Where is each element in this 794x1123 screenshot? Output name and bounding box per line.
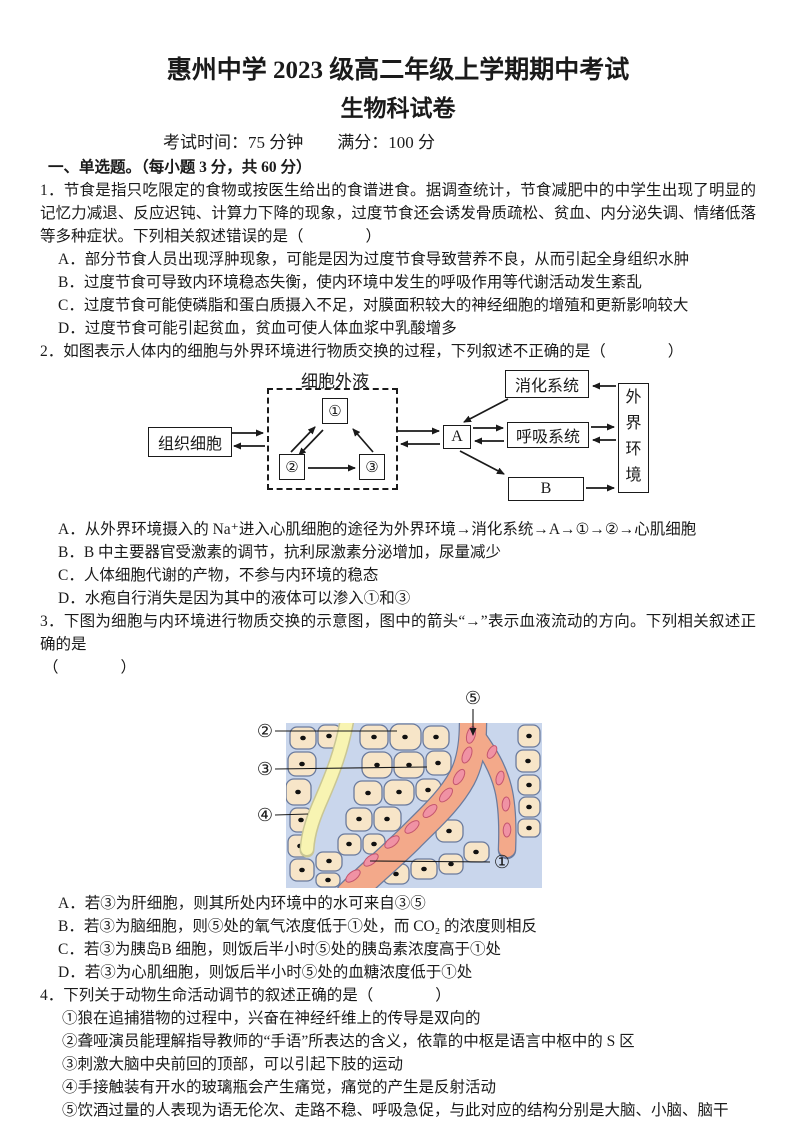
exam-paper-page: 惠州中学 2023 级高二年级上学期期中考试 生物科试卷 考试时间：75 分钟 …: [0, 0, 794, 1123]
question-4: 4．下列关于动物生命活动调节的叙述正确的是（ ） ①狼在追捕猎物的过程中，兴奋在…: [40, 984, 756, 1123]
question-1-option-c: C．过度节食可能使磷脂和蛋白质摄入不足，对膜面积较大的神经细胞的增殖和更新影响较…: [58, 294, 756, 317]
organ-b-box: B: [508, 477, 584, 501]
question-2-option-a: A．从外界环境摄入的 Na⁺进入心肌细胞的途径为外界环境→消化系统→A→①→②→…: [58, 518, 756, 541]
label-3: ③: [257, 759, 273, 780]
question-2-diagram: 细胞外液 组织细胞 ① ② ③ A 消化系统 呼吸系统 B 外界环境: [140, 365, 660, 515]
question-4-statement-1: ①狼在追捕猎物的过程中，兴奋在神经纤维上的传导是双向的: [62, 1007, 756, 1030]
question-1-option-b: B．过度节食可导致内环境稳态失衡，使内环境中发生的呼吸作用等代谢活动发生紊乱: [58, 271, 756, 294]
tissue-illustration: ② ③ ④ ⑤ ①: [250, 680, 550, 890]
label-5: ⑤: [465, 688, 481, 709]
arrow-digestive-to-a: [464, 399, 508, 422]
question-1: 1．节食是指只吃限定的食物或按医生给出的食谱进食。据调查统计，节食减肥中的中学生…: [40, 179, 756, 340]
question-3-stem-parentheses: （ ）: [43, 656, 756, 679]
exam-info: 考试时间：75 分钟 满分：100 分: [163, 131, 756, 154]
label-1: ①: [494, 852, 510, 873]
question-2-option-c: C．人体细胞代谢的产物，不参与内环境的稳态: [58, 564, 756, 587]
question-4-statement-4: ④手接触装有开水的玻璃瓶会产生痛觉，痛觉的产生是反射活动: [62, 1076, 756, 1099]
label-2: ②: [257, 721, 273, 742]
question-1-option-d: D．过度节食可能引起贫血，贫血可使人体血浆中乳酸增多: [58, 317, 756, 340]
question-1-stem: 1．节食是指只吃限定的食物或按医生给出的食谱进食。据调查统计，节食减肥中的中学生…: [40, 179, 756, 248]
arrow-a-to-b: [460, 451, 504, 474]
label-4: ④: [257, 805, 273, 826]
question-4-statement-2: ②聋哑演员能理解指导教师的“手语”所表达的含义，依靠的中枢是语言中枢中的 S 区: [62, 1030, 756, 1053]
question-3-stem: 3．下图为细胞与内环境进行物质交换的示意图，图中的箭头“→”表示血液流动的方向。…: [40, 610, 756, 656]
question-3-diagram: ② ③ ④ ⑤ ①: [250, 680, 550, 890]
question-2-option-d: D．水疱自行消失是因为其中的液体可以渗入①和③: [58, 587, 756, 610]
external-environment-box: 外界环境: [618, 383, 649, 493]
node-3-box: ③: [359, 454, 385, 480]
question-1-option-a: A．部分节食人员出现浮肿现象，可能是因为过度节食导致营养不良，从而引起全身组织水…: [58, 248, 756, 271]
node-1-box: ①: [322, 398, 348, 424]
section-heading: 一、单选题。（每小题 3 分，共 60 分）: [48, 156, 756, 179]
question-4-statement-3: ③刺激大脑中央前回的顶部，可以引起下肢的运动: [62, 1053, 756, 1076]
question-3-option-d: D．若③为心肌细胞，则饭后半小时⑤处的血糖浓度低于①处: [58, 961, 756, 984]
tissue-cells-box: 组织细胞: [148, 427, 232, 457]
respiratory-system-box: 呼吸系统: [507, 422, 589, 448]
question-3: 3．下图为细胞与内环境进行物质交换的示意图，图中的箭头“→”表示血液流动的方向。…: [40, 610, 756, 984]
node-2-box: ②: [279, 454, 305, 480]
question-3-option-b: B．若③为脑细胞，则⑤处的氧气浓度低于①处，而 CO₂ 的浓度则相反: [58, 915, 756, 938]
question-4-statement-5: ⑤饮酒过量的人表现为语无伦次、走路不稳、呼吸急促，与此对应的结构分别是大脑、小脑…: [62, 1099, 756, 1122]
exam-subtitle: 生物科试卷: [40, 94, 756, 124]
question-3-option-c: C．若③为胰岛B 细胞，则饭后半小时⑤处的胰岛素浓度高于①处: [58, 938, 756, 961]
question-3-option-a: A．若③为肝细胞，则其所处内环境中的水可来自③⑤: [58, 892, 756, 915]
question-2-stem: 2．如图表示人体内的细胞与外界环境进行物质交换的过程，下列叙述不正确的是（ ）: [40, 340, 756, 363]
digestive-system-box: 消化系统: [505, 370, 589, 398]
organ-a-box: A: [443, 425, 471, 449]
question-2: 2．如图表示人体内的细胞与外界环境进行物质交换的过程，下列叙述不正确的是（ ）: [40, 340, 756, 610]
question-4-stem: 4．下列关于动物生命活动调节的叙述正确的是（ ）: [40, 984, 756, 1007]
exam-title: 惠州中学 2023 级高二年级上学期期中考试: [40, 54, 756, 87]
question-2-option-b: B．B 中主要器官受激素的调节，抗利尿激素分泌增加，尿量减少: [58, 541, 756, 564]
